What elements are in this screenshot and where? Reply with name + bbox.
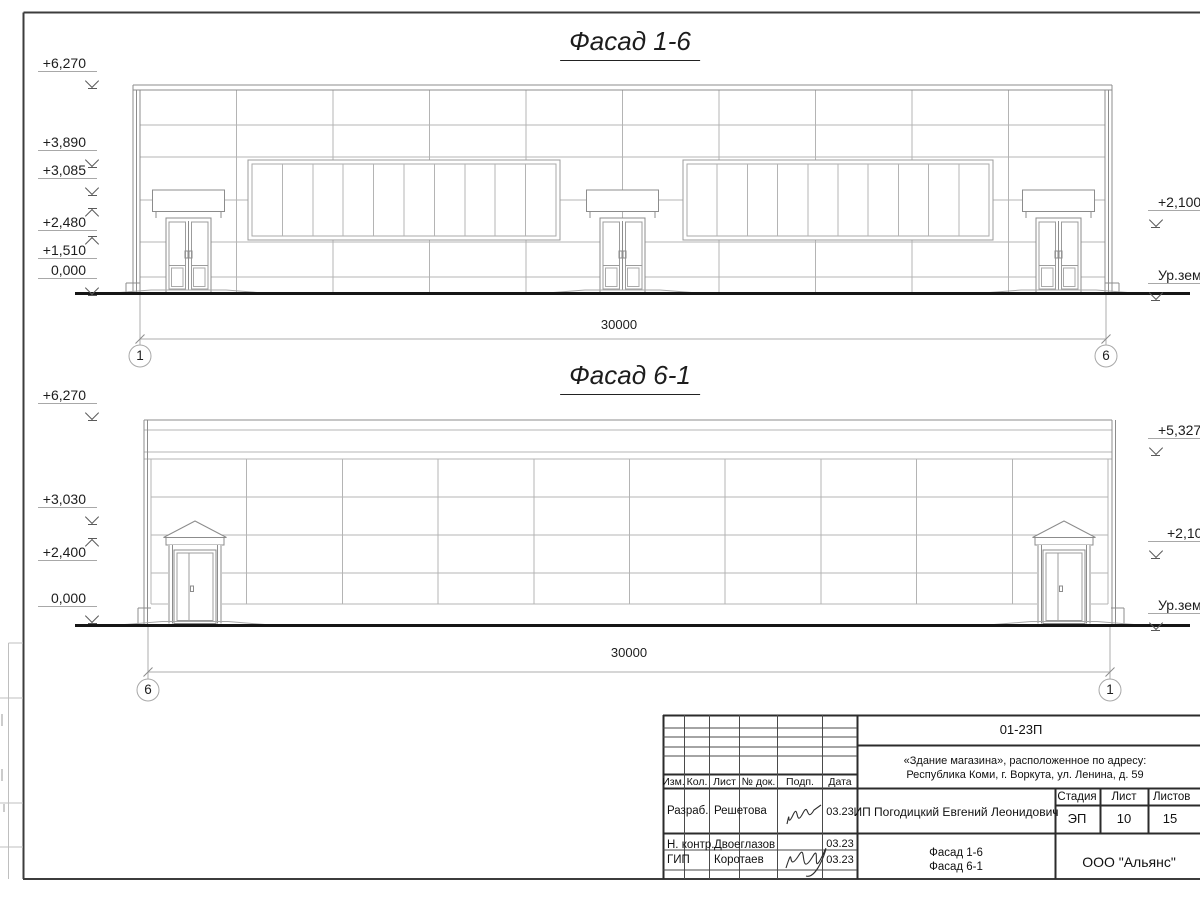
elevation-tick: [1151, 558, 1160, 559]
col-header-list: Лист: [713, 776, 736, 788]
level-value: +3,030: [43, 491, 86, 507]
drawing-sheet: Фасад 1-6 Фасад 6-1 +6,270 +3,890 +3,085…: [0, 0, 1200, 900]
dimension-bottom: [137, 627, 1121, 701]
role-date: 03.23: [826, 806, 854, 819]
elevation-tick: [1151, 300, 1160, 301]
sheet-frame: [23, 13, 1200, 880]
role-name: Двоеглазов: [714, 839, 775, 852]
title-block-client: ИП Погодицкий Евгений Леонидович: [853, 806, 1058, 820]
col-header-kol: Кол.: [687, 776, 708, 788]
axis-bubble-label: 6: [1102, 348, 1110, 364]
level-value: +6,270: [43, 55, 86, 71]
role-name: Решетова: [714, 805, 767, 818]
title-block-doc-number: 01-23П: [1000, 723, 1043, 738]
level-mark: +2,100: [1148, 541, 1200, 542]
level-value: 0,000: [51, 262, 86, 278]
col-header-data: Дата: [828, 776, 851, 788]
level-mark: +6,270: [38, 403, 97, 404]
facade-1-6-title: Фасад 1-6: [560, 27, 700, 61]
title-block-object-line2: Республика Коми, г. Воркута, ул. Ленина,…: [906, 769, 1143, 782]
level-value: Ур.земли: [1158, 267, 1200, 283]
level-value: +1,510: [43, 242, 86, 258]
role-name: Коротаев: [714, 854, 764, 867]
elevation-tick: [88, 295, 97, 296]
level-mark: +3,890: [38, 150, 97, 151]
sheets-value: 15: [1163, 812, 1177, 827]
level-value: +2,100: [1158, 194, 1200, 210]
dimension-label-top: 30000: [601, 318, 637, 333]
sheet-value: 10: [1117, 812, 1131, 827]
level-mark: +5,327: [1148, 438, 1200, 439]
col-header-izm: Изм.: [662, 776, 685, 788]
level-value: +2,400: [43, 544, 86, 560]
elevation-tick: [88, 195, 97, 196]
elevation-tick: [88, 420, 97, 421]
elevation-tick: [88, 236, 97, 237]
role-label: Н. контр.: [667, 839, 714, 852]
axis-bubble-label: 1: [1106, 682, 1114, 698]
role-label: Разраб.: [667, 805, 708, 818]
level-mark: Ур.земли: [1148, 613, 1200, 614]
facade-6-1-title: Фасад 6-1: [560, 361, 700, 395]
level-mark: +3,030: [38, 507, 97, 508]
elevation-tick: [88, 208, 97, 209]
elevation-tick: [88, 167, 97, 168]
sheet-header: Лист: [1112, 791, 1137, 804]
level-value: Ур.земли: [1158, 597, 1200, 613]
window-band-right: [683, 160, 993, 240]
col-header-podp: Подп.: [786, 776, 814, 788]
left-margin-strip: [0, 643, 23, 879]
elevation-tick: [1151, 227, 1160, 228]
role-date: 03.23: [826, 838, 854, 851]
axis-bubble-label: 6: [144, 682, 152, 698]
role-label: ГИП: [667, 854, 690, 867]
organization-name: ООО "Альянс": [1082, 854, 1176, 870]
level-mark: 0,000: [38, 606, 97, 607]
sheets-header: Листов: [1153, 791, 1190, 804]
axis-bubble-label: 1: [136, 348, 144, 364]
sheet-name-line1: Фасад 1-6: [929, 847, 983, 860]
signature-marks: [786, 805, 826, 876]
elevation-tick: [88, 623, 97, 624]
window-band-left: [248, 160, 560, 240]
elevation-tick: [88, 538, 97, 539]
title-block-object-line1: «Здание магазина», расположенное по адре…: [904, 755, 1147, 768]
level-value: +6,270: [43, 387, 86, 403]
col-header-doc: № док.: [742, 776, 776, 788]
role-date: 03.23: [826, 854, 854, 867]
level-mark: 0,000: [38, 278, 97, 279]
level-value: 0,000: [51, 590, 86, 606]
level-mark: Ур.земли: [1148, 283, 1200, 284]
level-value: +5,327: [1158, 422, 1200, 438]
stage-value: ЭП: [1068, 812, 1087, 827]
level-mark: +6,270: [38, 71, 97, 72]
elevation-tick: [1151, 455, 1160, 456]
level-mark: +1,510: [38, 258, 97, 259]
level-mark: +2,480: [38, 230, 97, 231]
level-mark: +2,400: [38, 560, 97, 561]
stage-header: Стадия: [1057, 791, 1096, 804]
sheet-name-line2: Фасад 6-1: [929, 861, 983, 874]
level-mark: +2,100: [1148, 210, 1200, 211]
level-value: +2,100: [1167, 525, 1200, 541]
elevation-tick: [88, 88, 97, 89]
elevation-tick: [88, 524, 97, 525]
level-value: +2,480: [43, 214, 86, 230]
level-value: +3,890: [43, 134, 86, 150]
elevation-tick: [1151, 630, 1160, 631]
level-value: +3,085: [43, 162, 86, 178]
dimension-label-bottom: 30000: [611, 646, 647, 661]
level-mark: +3,085: [38, 178, 97, 179]
